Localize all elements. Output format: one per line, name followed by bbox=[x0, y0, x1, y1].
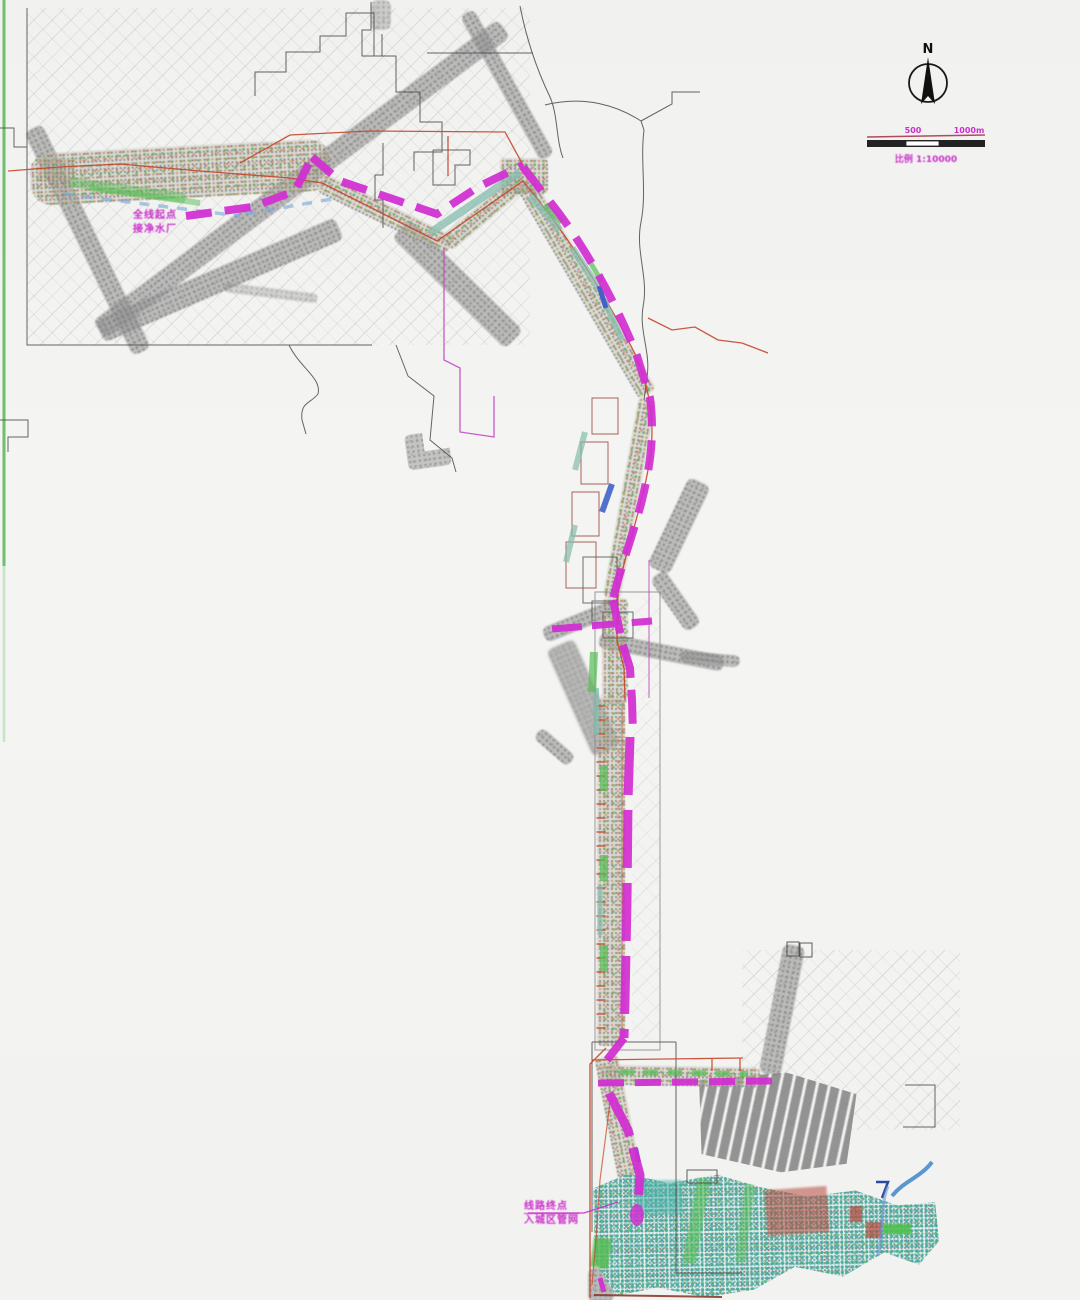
red-area-patch bbox=[764, 1186, 829, 1236]
pipeline-corridor-pointcloud bbox=[600, 1065, 760, 1088]
red-area-patch bbox=[866, 1222, 882, 1238]
pipeline-corridor-pointcloud bbox=[602, 598, 628, 704]
route-end-line2: 入城区管网 bbox=[524, 1214, 579, 1227]
route-start-line2: 接净水厂 bbox=[133, 223, 177, 237]
pipeline-route-map: N 500 1000m 比例 1:10000 全线起点 接净水厂 线路终点 入城… bbox=[0, 0, 1080, 1300]
scale-tick-mid: 500 bbox=[905, 126, 922, 135]
water-patch bbox=[636, 1180, 682, 1214]
scale-bar: 500 1000m 比例 1:10000 bbox=[867, 126, 985, 165]
vegetation-patch bbox=[883, 1224, 911, 1234]
pipeline-corridor-pointcloud bbox=[597, 698, 625, 1046]
road-pointcloud bbox=[533, 727, 576, 767]
red-area-patch bbox=[850, 1206, 862, 1222]
road-pointcloud bbox=[647, 477, 711, 576]
route-end-label: 线路终点 入城区管网 bbox=[524, 1200, 579, 1227]
north-arrow: N bbox=[909, 42, 947, 104]
north-label: N bbox=[923, 42, 934, 57]
route-start-label: 全线起点 接净水厂 bbox=[133, 209, 177, 237]
building-block bbox=[404, 429, 453, 471]
road-pointcloud bbox=[371, 0, 391, 30]
scale-tick-end: 1000m bbox=[954, 126, 985, 135]
hatch-corridor-right bbox=[632, 700, 660, 1040]
route-end-line1: 线路终点 bbox=[524, 1200, 579, 1214]
pipeline-corridor-pointcloud bbox=[515, 177, 656, 400]
scale-caption: 比例 1:10000 bbox=[895, 153, 957, 165]
route-start-line1: 全线起点 bbox=[133, 209, 177, 223]
pipeline-corridor-pointcloud bbox=[603, 397, 657, 600]
pipeline-corridor-pointcloud bbox=[38, 158, 74, 182]
